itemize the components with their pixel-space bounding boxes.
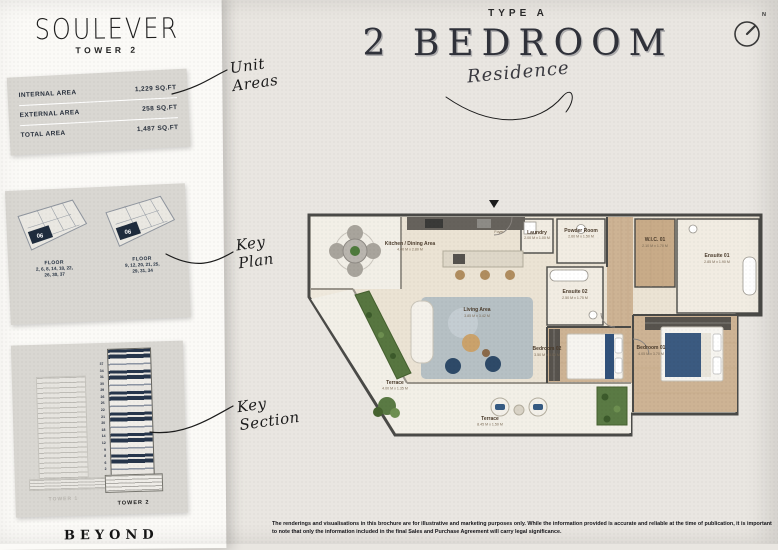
sofa	[411, 301, 433, 363]
left-info-sheet: SOULEVER TOWER 2 INTERNAL AREA 1,229 SQ.…	[0, 0, 226, 550]
note-key-plan: Key Plan	[235, 232, 275, 273]
room-label-terrace-1: Terrace	[386, 380, 404, 386]
north-compass-icon	[729, 14, 767, 52]
room-dims-kitchen: 4.40 M x 2.80 M	[397, 248, 423, 252]
floor-number: 2	[94, 466, 106, 473]
tower-2-podium	[105, 473, 164, 493]
room-label-ensuite2: Ensuite 02	[562, 289, 587, 295]
room-label-kitchen: Kitchen / Dining Area	[385, 241, 436, 247]
room-dims-bedroom2: 3.50 M x 3.00 M	[534, 353, 560, 357]
floorplan: Kitchen / Dining Area 4.40 M x 2.80 M Fo…	[295, 193, 775, 463]
room-dims-terrace-2: 8.45 M x 1.50 M	[477, 423, 503, 427]
oven	[425, 219, 443, 228]
island-sink	[453, 254, 465, 264]
room-dims-terrace-1: 4.00 M x 1.35 M	[382, 387, 408, 391]
tower-1-illustration	[36, 375, 89, 480]
room-dims-wic: 2.10 M x 1.70 M	[642, 244, 668, 248]
room-label-terrace-2: Terrace	[481, 416, 499, 422]
page-header: TYPE A 2 BEDROOM Residence	[318, 8, 718, 83]
cooktop	[477, 219, 491, 228]
kitchen-counter	[407, 217, 525, 230]
floor-number-column: 2 6 8 9 12 14 18 20 21 22 25 26 29 30 31…	[91, 361, 106, 473]
floor-list: 2, 6, 8, 14, 18, 22, 26, 30, 37	[13, 264, 95, 280]
area-label: EXTERNAL AREA	[20, 109, 80, 119]
type-label: TYPE A	[318, 8, 718, 19]
room-label-foyer: Foyer	[494, 230, 504, 234]
brand-tower-label: TOWER 2	[0, 44, 222, 56]
armchair	[445, 358, 461, 374]
coffee-table	[462, 334, 480, 352]
key-plan-plate-2: 06 FLOOR 9, 12, 20, 21, 25, 29, 31, 34	[98, 191, 183, 276]
room-dims-bedroom1: 4.05 M x 3.70 M	[638, 352, 664, 356]
disclaimer-text: The renderings and visualisations in thi…	[272, 520, 772, 537]
compass-north-label: N	[762, 12, 766, 18]
developer-logo: BEYOND	[0, 527, 226, 544]
wic-room	[635, 219, 675, 287]
unit-areas-table: INTERNAL AREA 1,229 SQ.FT EXTERNAL AREA …	[7, 69, 191, 156]
room-label-living: Living Area	[463, 307, 490, 313]
armchair	[485, 356, 501, 372]
floor-list: 9, 12, 20, 21, 25, 29, 31, 34	[101, 260, 183, 276]
unit-number-badge: 06	[37, 233, 45, 239]
side-table	[482, 349, 490, 357]
key-plan-panel: 06 FLOOR 2, 6, 8, 14, 18, 22, 26, 30, 37…	[5, 183, 191, 325]
tower-2-label: TOWER 2	[104, 499, 164, 507]
area-label: TOTAL AREA	[21, 130, 66, 139]
note-key-section: Key Section	[236, 390, 301, 434]
room-label-bedroom2: Bedroom 02	[533, 346, 562, 352]
key-plan-plate-1: 06 FLOOR 2, 6, 8, 14, 18, 22, 26, 30, 37	[10, 195, 95, 280]
entry-arrow-icon	[489, 200, 499, 208]
room-dims-ensuite2: 2.50 M x 1.75 M	[562, 296, 588, 300]
floor-plate-icon: 06	[100, 192, 180, 251]
page-title: 2 BEDROOM	[318, 23, 718, 64]
area-value: 1,229 SQ.FT	[135, 84, 177, 93]
tower-2-illustration	[107, 348, 155, 477]
room-dims-laundry: 2.00 M x 1.00 M	[524, 236, 550, 240]
brand-logo: SOULEVER TOWER 2	[0, 14, 222, 56]
area-label: INTERNAL AREA	[18, 89, 76, 99]
room-dims-powder: 2.60 M x 1.50 M	[568, 235, 594, 239]
floor-plate-icon: 06	[12, 195, 92, 254]
tower-1-label: TOWER 1	[35, 495, 91, 503]
note-unit-areas: Unit Areas	[229, 53, 280, 95]
brand-logo-text: SOULEVER	[34, 12, 179, 46]
unit-number-badge: 06	[124, 230, 132, 236]
room-dims-ensuite1: 2.85 M x 1.90 M	[704, 260, 730, 264]
bed-bedroom1	[661, 327, 723, 381]
bed-bedroom2	[567, 334, 623, 379]
compass: N	[729, 14, 767, 52]
area-value: 258 SQ.FT	[142, 104, 178, 113]
room-label-bedroom1: Bedroom 01	[637, 345, 666, 351]
room-label-powder: Powder Room	[564, 228, 598, 234]
room-label-ensuite1: Ensuite 01	[704, 253, 729, 259]
area-value: 1,487 SQ.FT	[137, 124, 179, 133]
room-label-wic: W.I.C. 01	[645, 237, 666, 243]
room-dims-living: 3.85 M x 3.42 M	[464, 314, 490, 318]
key-section-panel: TOWER 1 2 6 8 9 12 14 18 20 21 22 25 26 …	[11, 341, 188, 518]
